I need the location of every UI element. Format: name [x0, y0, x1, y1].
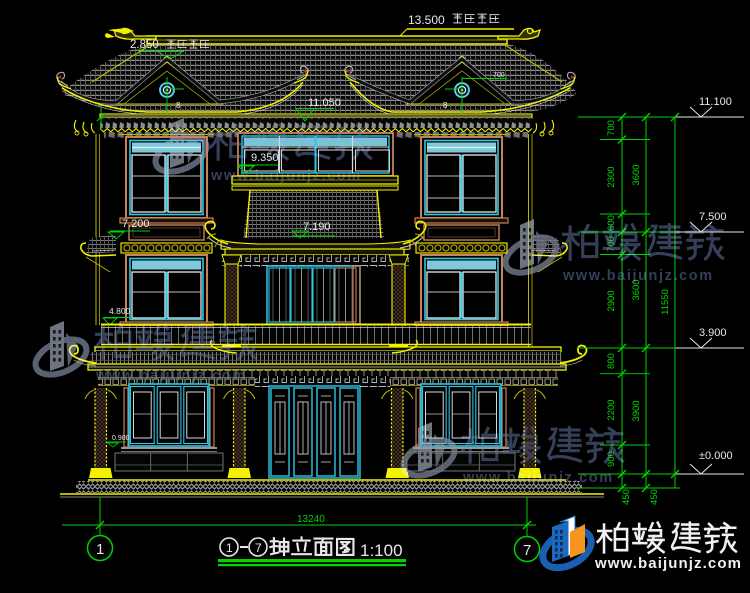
svg-text:7.500: 7.500 [699, 211, 727, 223]
svg-text:700: 700 [493, 72, 505, 79]
svg-text:7: 7 [523, 542, 531, 559]
svg-text:www.baijunjz.com: www.baijunjz.com [462, 470, 614, 486]
svg-text:450: 450 [621, 489, 632, 505]
svg-text:11.050: 11.050 [308, 97, 341, 109]
svg-text:www.baijunjz.com: www.baijunjz.com [95, 368, 247, 384]
svg-text:1:100: 1:100 [360, 541, 403, 560]
svg-text:13240: 13240 [297, 514, 325, 525]
svg-text:www.baijunjz.com: www.baijunjz.com [594, 555, 742, 572]
svg-text:13.500: 13.500 [408, 13, 445, 27]
svg-text:www.baijunjz.com: www.baijunjz.com [210, 168, 362, 184]
svg-text:3.900: 3.900 [699, 327, 727, 339]
svg-text:1: 1 [96, 541, 104, 558]
svg-text:800: 800 [606, 353, 617, 369]
svg-text:7.200: 7.200 [122, 218, 150, 230]
svg-text:8: 8 [176, 101, 181, 110]
svg-text:2900: 2900 [606, 290, 617, 311]
svg-text:700: 700 [606, 120, 617, 136]
svg-text:3600: 3600 [631, 164, 642, 185]
svg-text:8: 8 [443, 101, 448, 110]
svg-text:2300: 2300 [606, 166, 617, 187]
svg-text:www.baijunjz.com: www.baijunjz.com [562, 268, 714, 284]
svg-text:4.800: 4.800 [109, 306, 131, 316]
svg-text:450: 450 [649, 489, 660, 505]
svg-text:11550: 11550 [660, 289, 671, 315]
svg-text:3900: 3900 [631, 400, 642, 421]
svg-text:0.900: 0.900 [112, 435, 130, 442]
svg-text:2200: 2200 [606, 399, 617, 420]
svg-text:1: 1 [226, 541, 233, 555]
svg-text:7: 7 [255, 541, 262, 555]
svg-text:11.100: 11.100 [699, 96, 732, 108]
svg-text:±0.000: ±0.000 [699, 450, 733, 462]
